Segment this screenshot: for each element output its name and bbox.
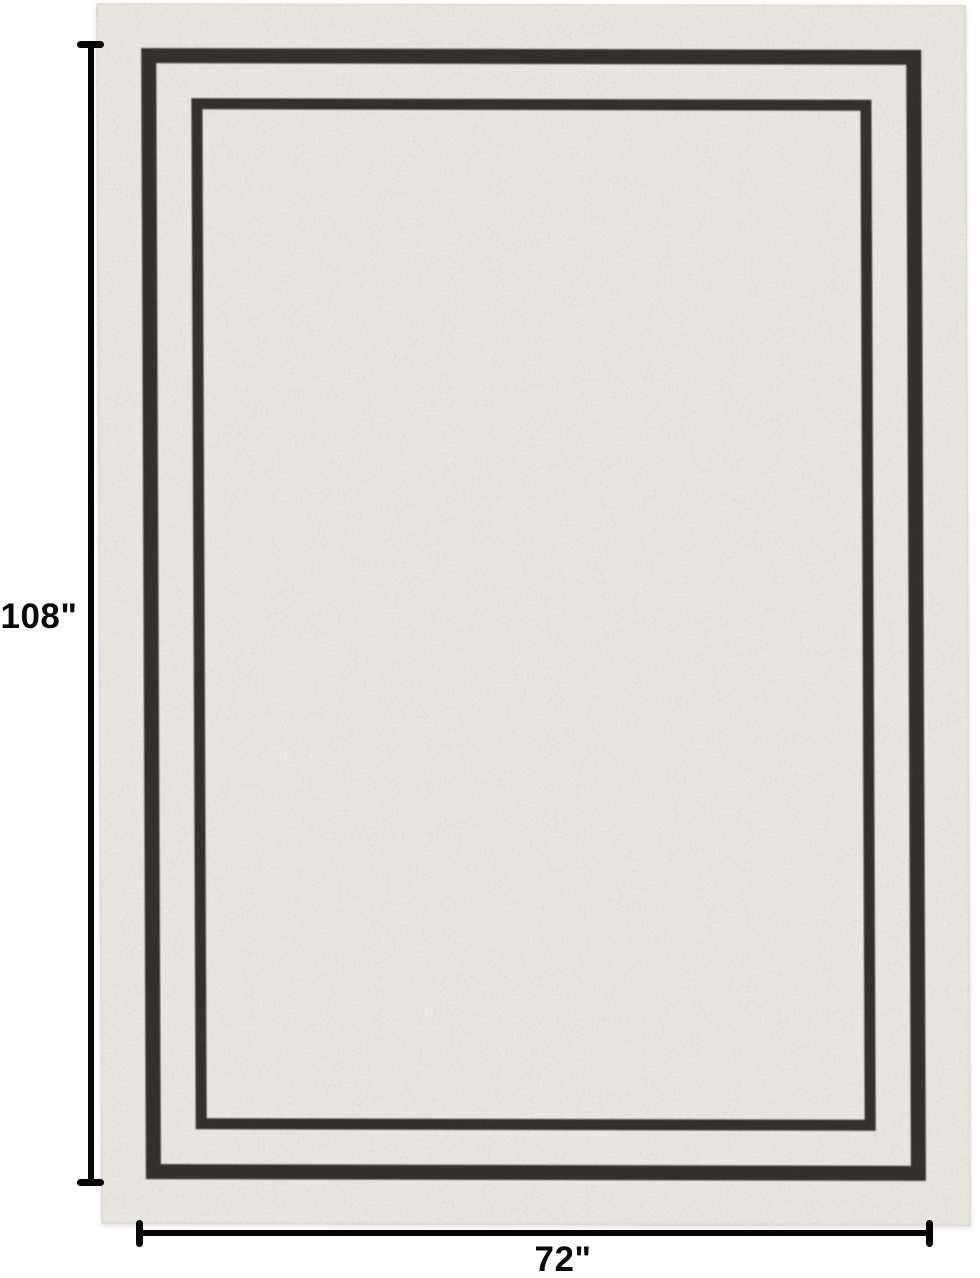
width-dimension-line [140, 1230, 929, 1236]
height-dimension-line [88, 45, 94, 1183]
rug-outer-border [141, 48, 926, 1181]
height-dimension-end-top [77, 41, 104, 48]
product-dimension-image: 108" 72" [0, 0, 980, 1278]
rug-photo [96, 3, 971, 1226]
height-dimension-label: 108" [0, 599, 78, 635]
width-dimension-end-left [136, 1220, 143, 1247]
width-dimension-label: 72" [530, 1242, 596, 1278]
width-dimension-end-right [926, 1220, 933, 1247]
height-dimension-end-bottom [77, 1179, 104, 1186]
rug-inner-border [191, 98, 875, 1131]
